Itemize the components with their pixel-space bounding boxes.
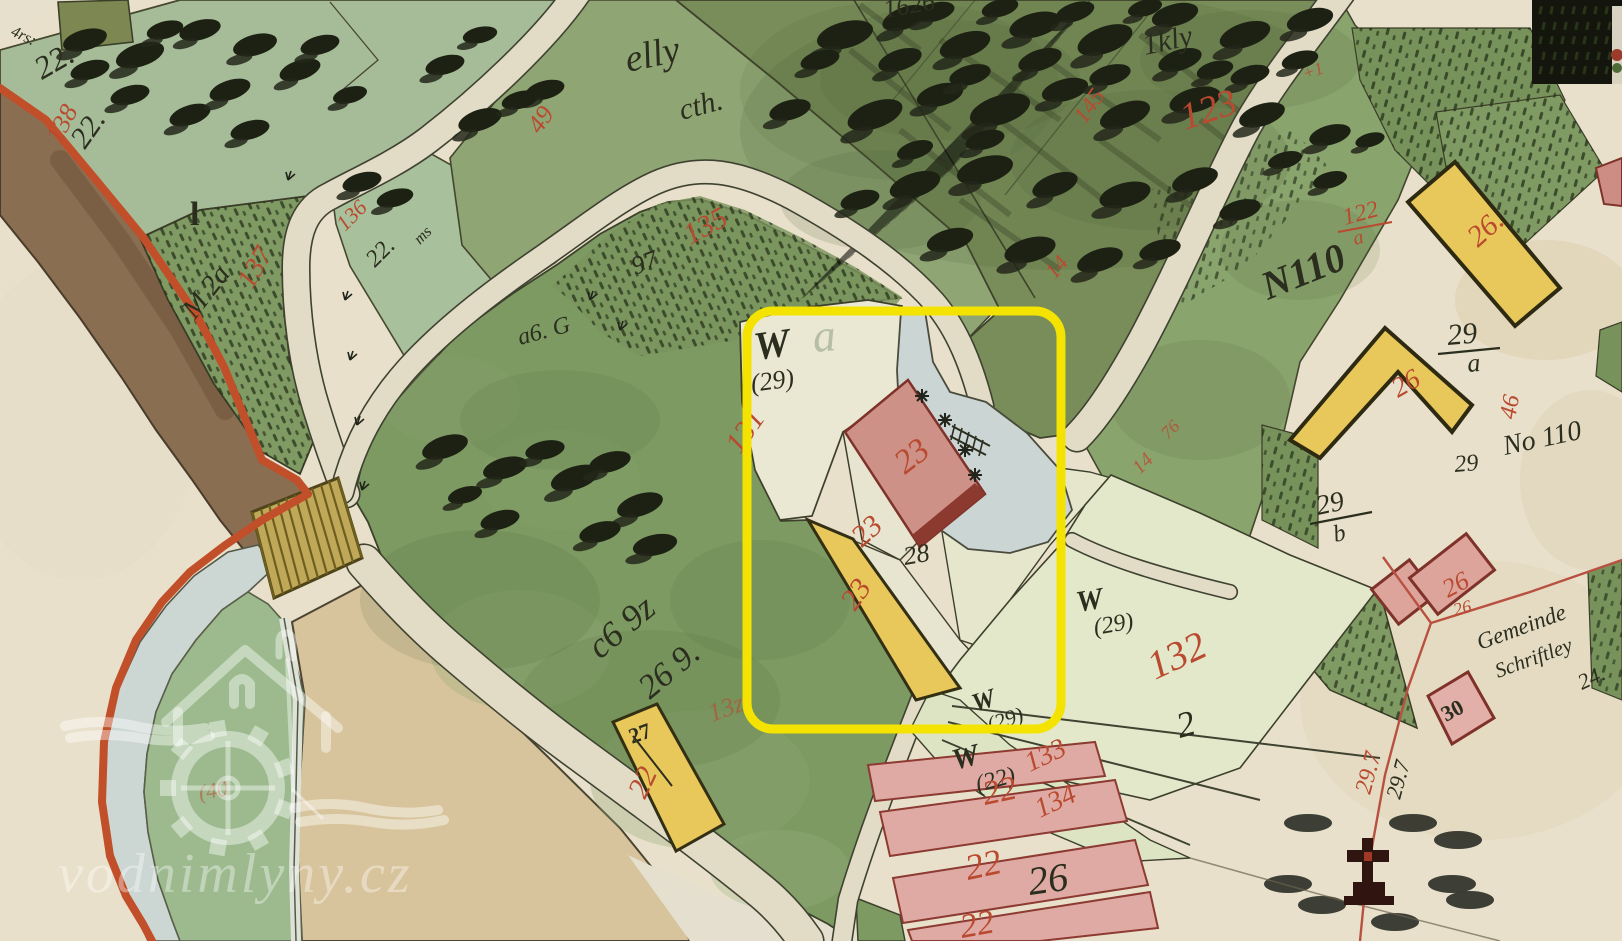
svg-text:22: 22 bbox=[957, 904, 997, 941]
svg-text:a: a bbox=[1466, 348, 1481, 378]
svg-text:46: 46 bbox=[1495, 393, 1525, 421]
svg-text:a: a bbox=[810, 309, 837, 362]
svg-text:28: 28 bbox=[901, 538, 932, 571]
svg-text:vodnimlyny.cz: vodnimlyny.cz bbox=[58, 843, 413, 905]
svg-text:29: 29 bbox=[1453, 450, 1479, 478]
svg-text:29: 29 bbox=[1446, 316, 1479, 351]
svg-text:26: 26 bbox=[1025, 854, 1071, 904]
svg-text:(29): (29) bbox=[749, 363, 796, 398]
svg-text:l: l bbox=[190, 196, 199, 233]
